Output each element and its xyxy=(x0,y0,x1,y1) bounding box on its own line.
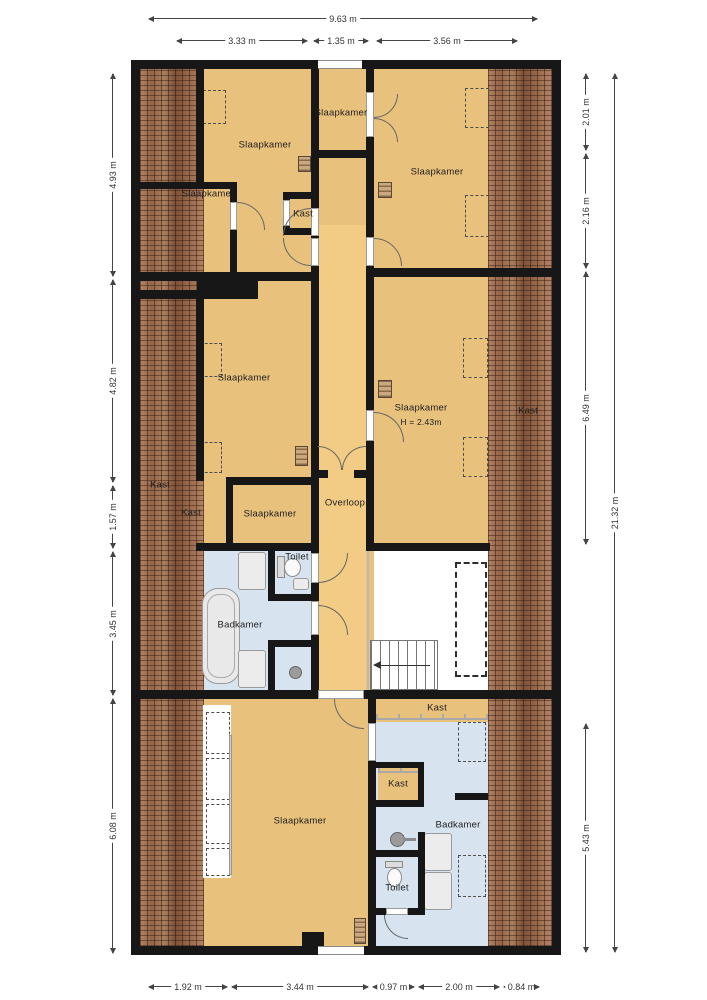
dimension-label: 3.56 m xyxy=(430,36,464,46)
room-label-slaapkamer-bottom: Slaapkamer xyxy=(274,816,327,827)
room-label-slaapkamer-top-center: Slaapkamer xyxy=(315,108,368,119)
washbasin xyxy=(424,833,452,871)
wardrobe-icon xyxy=(463,437,488,477)
floor-plan-page: SlaapkamerSlaapkamerSlaapkamerSlaapkamer… xyxy=(0,0,707,1000)
dimension-line: 3.56 m xyxy=(376,36,518,45)
shower-arm xyxy=(404,838,416,841)
wardrobe-icon xyxy=(206,848,230,876)
closet-rail-bottom-strip xyxy=(376,714,488,720)
wall-segment xyxy=(374,762,424,768)
sliding-door xyxy=(229,735,232,875)
dimension-line: 4.93 m xyxy=(108,73,117,277)
dimension-line: 1.57 m xyxy=(108,485,117,549)
wall-segment xyxy=(366,470,374,551)
dimension-label: 1.92 m xyxy=(171,982,205,992)
wall-segment xyxy=(418,762,424,807)
door-frame xyxy=(386,908,408,915)
room-label-kast-left-roof: Kast xyxy=(150,480,170,491)
room-label-toilet-mid: Toilet xyxy=(285,552,308,563)
stair-direction-line xyxy=(380,665,430,666)
dimension-label: 21.32 m xyxy=(610,494,620,533)
wardrobe-icon xyxy=(458,722,486,762)
door-frame xyxy=(230,202,237,230)
wall-segment xyxy=(268,640,275,697)
wardrobe-icon xyxy=(206,804,230,844)
dimension-line: 6.49 m xyxy=(581,271,590,545)
ladder-icon xyxy=(378,182,392,198)
door-frame xyxy=(366,237,374,266)
door-frame xyxy=(318,690,364,699)
room-label-height-mid-right: H = 2.43m xyxy=(400,417,441,427)
wall-segment xyxy=(455,793,488,800)
door-frame xyxy=(366,410,374,441)
dimension-line: 3.33 m xyxy=(176,36,308,45)
dimension-label: 4.82 m xyxy=(108,364,118,398)
wall-outer-right xyxy=(552,60,561,955)
wall-segment xyxy=(196,296,204,481)
wardrobe-icon xyxy=(206,712,230,754)
shower-drain xyxy=(289,666,302,679)
wall-outer-left xyxy=(131,60,140,955)
dimension-line: 2.01 m xyxy=(581,73,590,151)
stair-direction-arrow xyxy=(373,661,381,669)
room-label-toilet-bottom: Toilet xyxy=(385,883,408,894)
wall-segment xyxy=(226,477,318,485)
dimension-line: 9.63 m xyxy=(148,14,538,23)
wall-segment xyxy=(318,470,328,478)
room-label-kast-top-center: Kast xyxy=(293,209,313,220)
ladder-icon xyxy=(295,446,308,466)
wardrobe-icon xyxy=(465,195,489,237)
dimension-line: 1.35 m xyxy=(313,36,369,45)
roof-hatch-right xyxy=(488,69,552,946)
wardrobe-icon xyxy=(458,855,486,897)
wall-segment xyxy=(311,150,373,158)
dimension-label: 2.16 m xyxy=(581,194,591,228)
dimension-label: 6.49 m xyxy=(581,391,591,425)
void-dashed-outline xyxy=(455,562,487,677)
dimension-line: 4.82 m xyxy=(108,279,117,483)
wardrobe-icon xyxy=(465,88,489,128)
window-bottom xyxy=(318,946,364,955)
wall-segment xyxy=(197,272,258,299)
dimension-label: 0.84 m xyxy=(505,982,539,992)
ladder-icon xyxy=(378,380,392,398)
bathtub xyxy=(202,588,240,684)
dimension-label: 0.97 m xyxy=(377,982,411,992)
dimension-label: 6.08 m xyxy=(108,809,118,843)
washbasin xyxy=(424,872,452,910)
room-label-badkamer-mid: Badkamer xyxy=(218,620,263,631)
room-label-slaapkamer-top-right: Slaapkamer xyxy=(411,167,464,178)
room-label-slaapkamer-left-small: Slaapkamer xyxy=(182,189,235,200)
dimension-label: 1.57 m xyxy=(108,500,118,534)
wall-segment xyxy=(226,477,233,551)
wardrobe-icon xyxy=(206,758,230,800)
dimension-line: 21.32 m xyxy=(610,73,619,953)
dimension-label: 2.01 m xyxy=(581,95,591,129)
dimension-label: 3.33 m xyxy=(225,36,259,46)
hand-basin xyxy=(293,578,309,590)
dimension-line: 2.00 m xyxy=(418,982,500,991)
door-frame xyxy=(368,723,376,761)
wall-segment xyxy=(268,548,275,601)
ladder-icon xyxy=(298,156,311,172)
wall-segment xyxy=(196,543,318,551)
room-label-badkamer-bottom: Badkamer xyxy=(436,820,481,831)
toilet-tank xyxy=(385,861,403,868)
dimension-label: 2.00 m xyxy=(442,982,476,992)
closet-rail-bottom-small xyxy=(378,768,418,773)
dimension-label: 1.35 m xyxy=(324,36,358,46)
dimension-label: 5.43 m xyxy=(581,821,591,855)
wall-segment xyxy=(311,477,319,699)
dimension-label: 9.63 m xyxy=(326,14,360,24)
dimension-label: 4.93 m xyxy=(108,158,118,192)
wardrobe-icon xyxy=(463,338,488,378)
dimension-label: 3.44 m xyxy=(283,982,317,992)
stairwell-edge-line xyxy=(367,551,369,690)
door-frame xyxy=(311,238,319,266)
room-label-kast-bottom-small: Kast xyxy=(388,779,408,790)
washbasin xyxy=(238,650,266,688)
wall-segment xyxy=(366,268,552,277)
room-label-kast-mid-right: Kast xyxy=(518,406,538,417)
room-label-kast-left: Kast xyxy=(181,508,201,519)
dimension-line: 2.16 m xyxy=(581,153,590,269)
room-label-slaapkamer-mid-right: Slaapkamer xyxy=(395,403,448,414)
wall-segment xyxy=(366,543,490,551)
dimension-line: 0.84 m xyxy=(503,982,540,991)
wall-segment xyxy=(311,150,319,477)
dimension-line: 3.45 m xyxy=(108,551,117,696)
dimension-line: 5.43 m xyxy=(581,723,590,953)
dimension-line: 3.44 m xyxy=(231,982,369,991)
washbasin xyxy=(238,552,266,590)
room-label-kast-bottom-strip: Kast xyxy=(427,703,447,714)
wall-segment xyxy=(374,800,424,807)
dimension-line: 1.92 m xyxy=(148,982,228,991)
chimney-block xyxy=(302,932,324,946)
wall-segment xyxy=(196,69,204,189)
dimension-label: 3.45 m xyxy=(108,607,118,641)
shower-drain xyxy=(390,832,405,847)
window-top xyxy=(318,60,362,69)
room-label-slaapkamer-center-small: Slaapkamer xyxy=(244,509,297,520)
room-label-slaapkamer-top-left: Slaapkamer xyxy=(239,140,292,151)
wall-segment xyxy=(376,850,418,857)
ladder-icon xyxy=(354,918,366,944)
dimension-line: 0.97 m xyxy=(372,982,415,991)
room-label-slaapkamer-mid-left: Slaapkamer xyxy=(218,373,271,384)
dimension-line: 6.08 m xyxy=(108,698,117,954)
room-label-overloop: Overloop xyxy=(325,498,365,509)
wall-segment xyxy=(418,832,425,915)
wall-segment xyxy=(354,470,366,478)
